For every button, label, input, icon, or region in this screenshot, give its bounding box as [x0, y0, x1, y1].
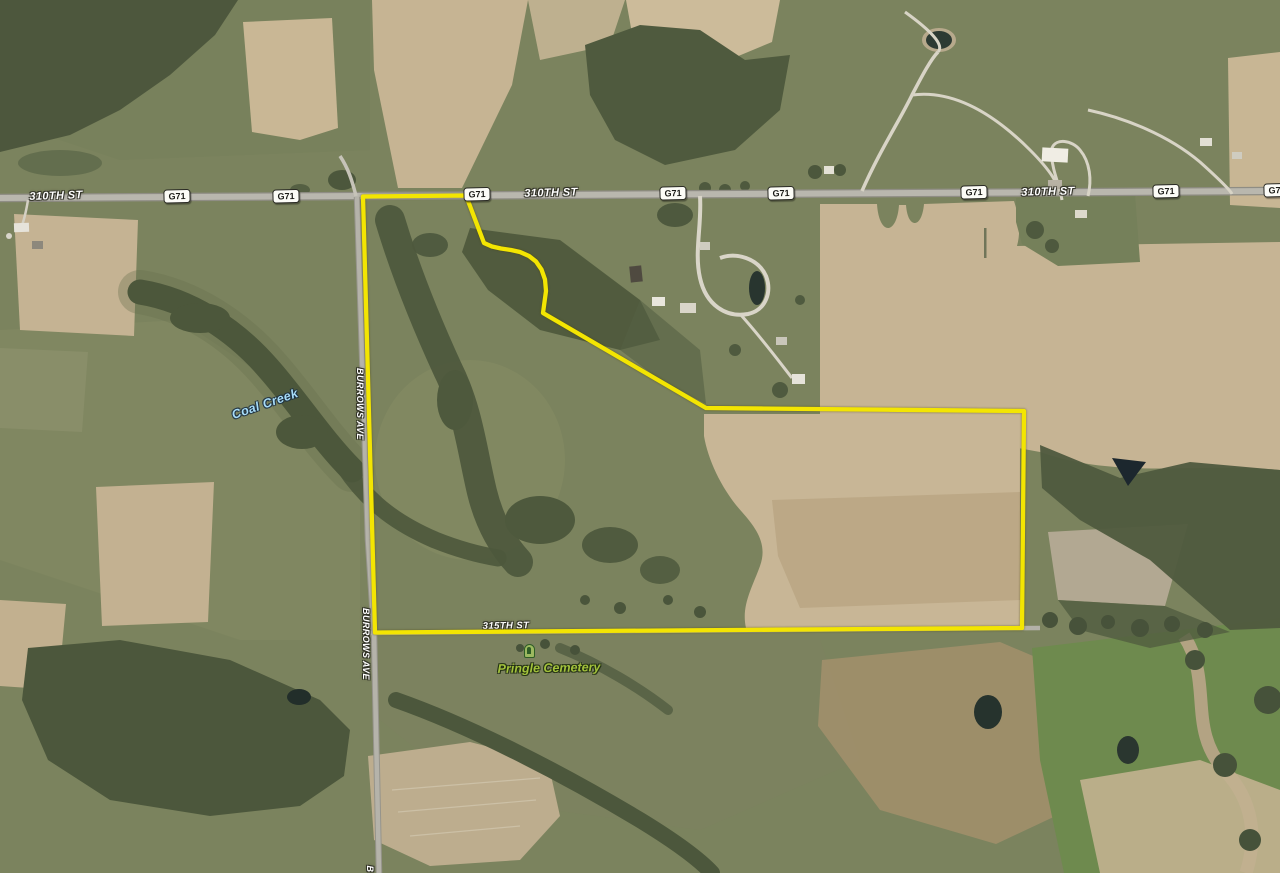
satellite-map-viewport[interactable]: Coal Creek Pringle Cemetery 310TH ST310T… — [0, 0, 1280, 873]
terrain-imagery — [0, 0, 1280, 873]
